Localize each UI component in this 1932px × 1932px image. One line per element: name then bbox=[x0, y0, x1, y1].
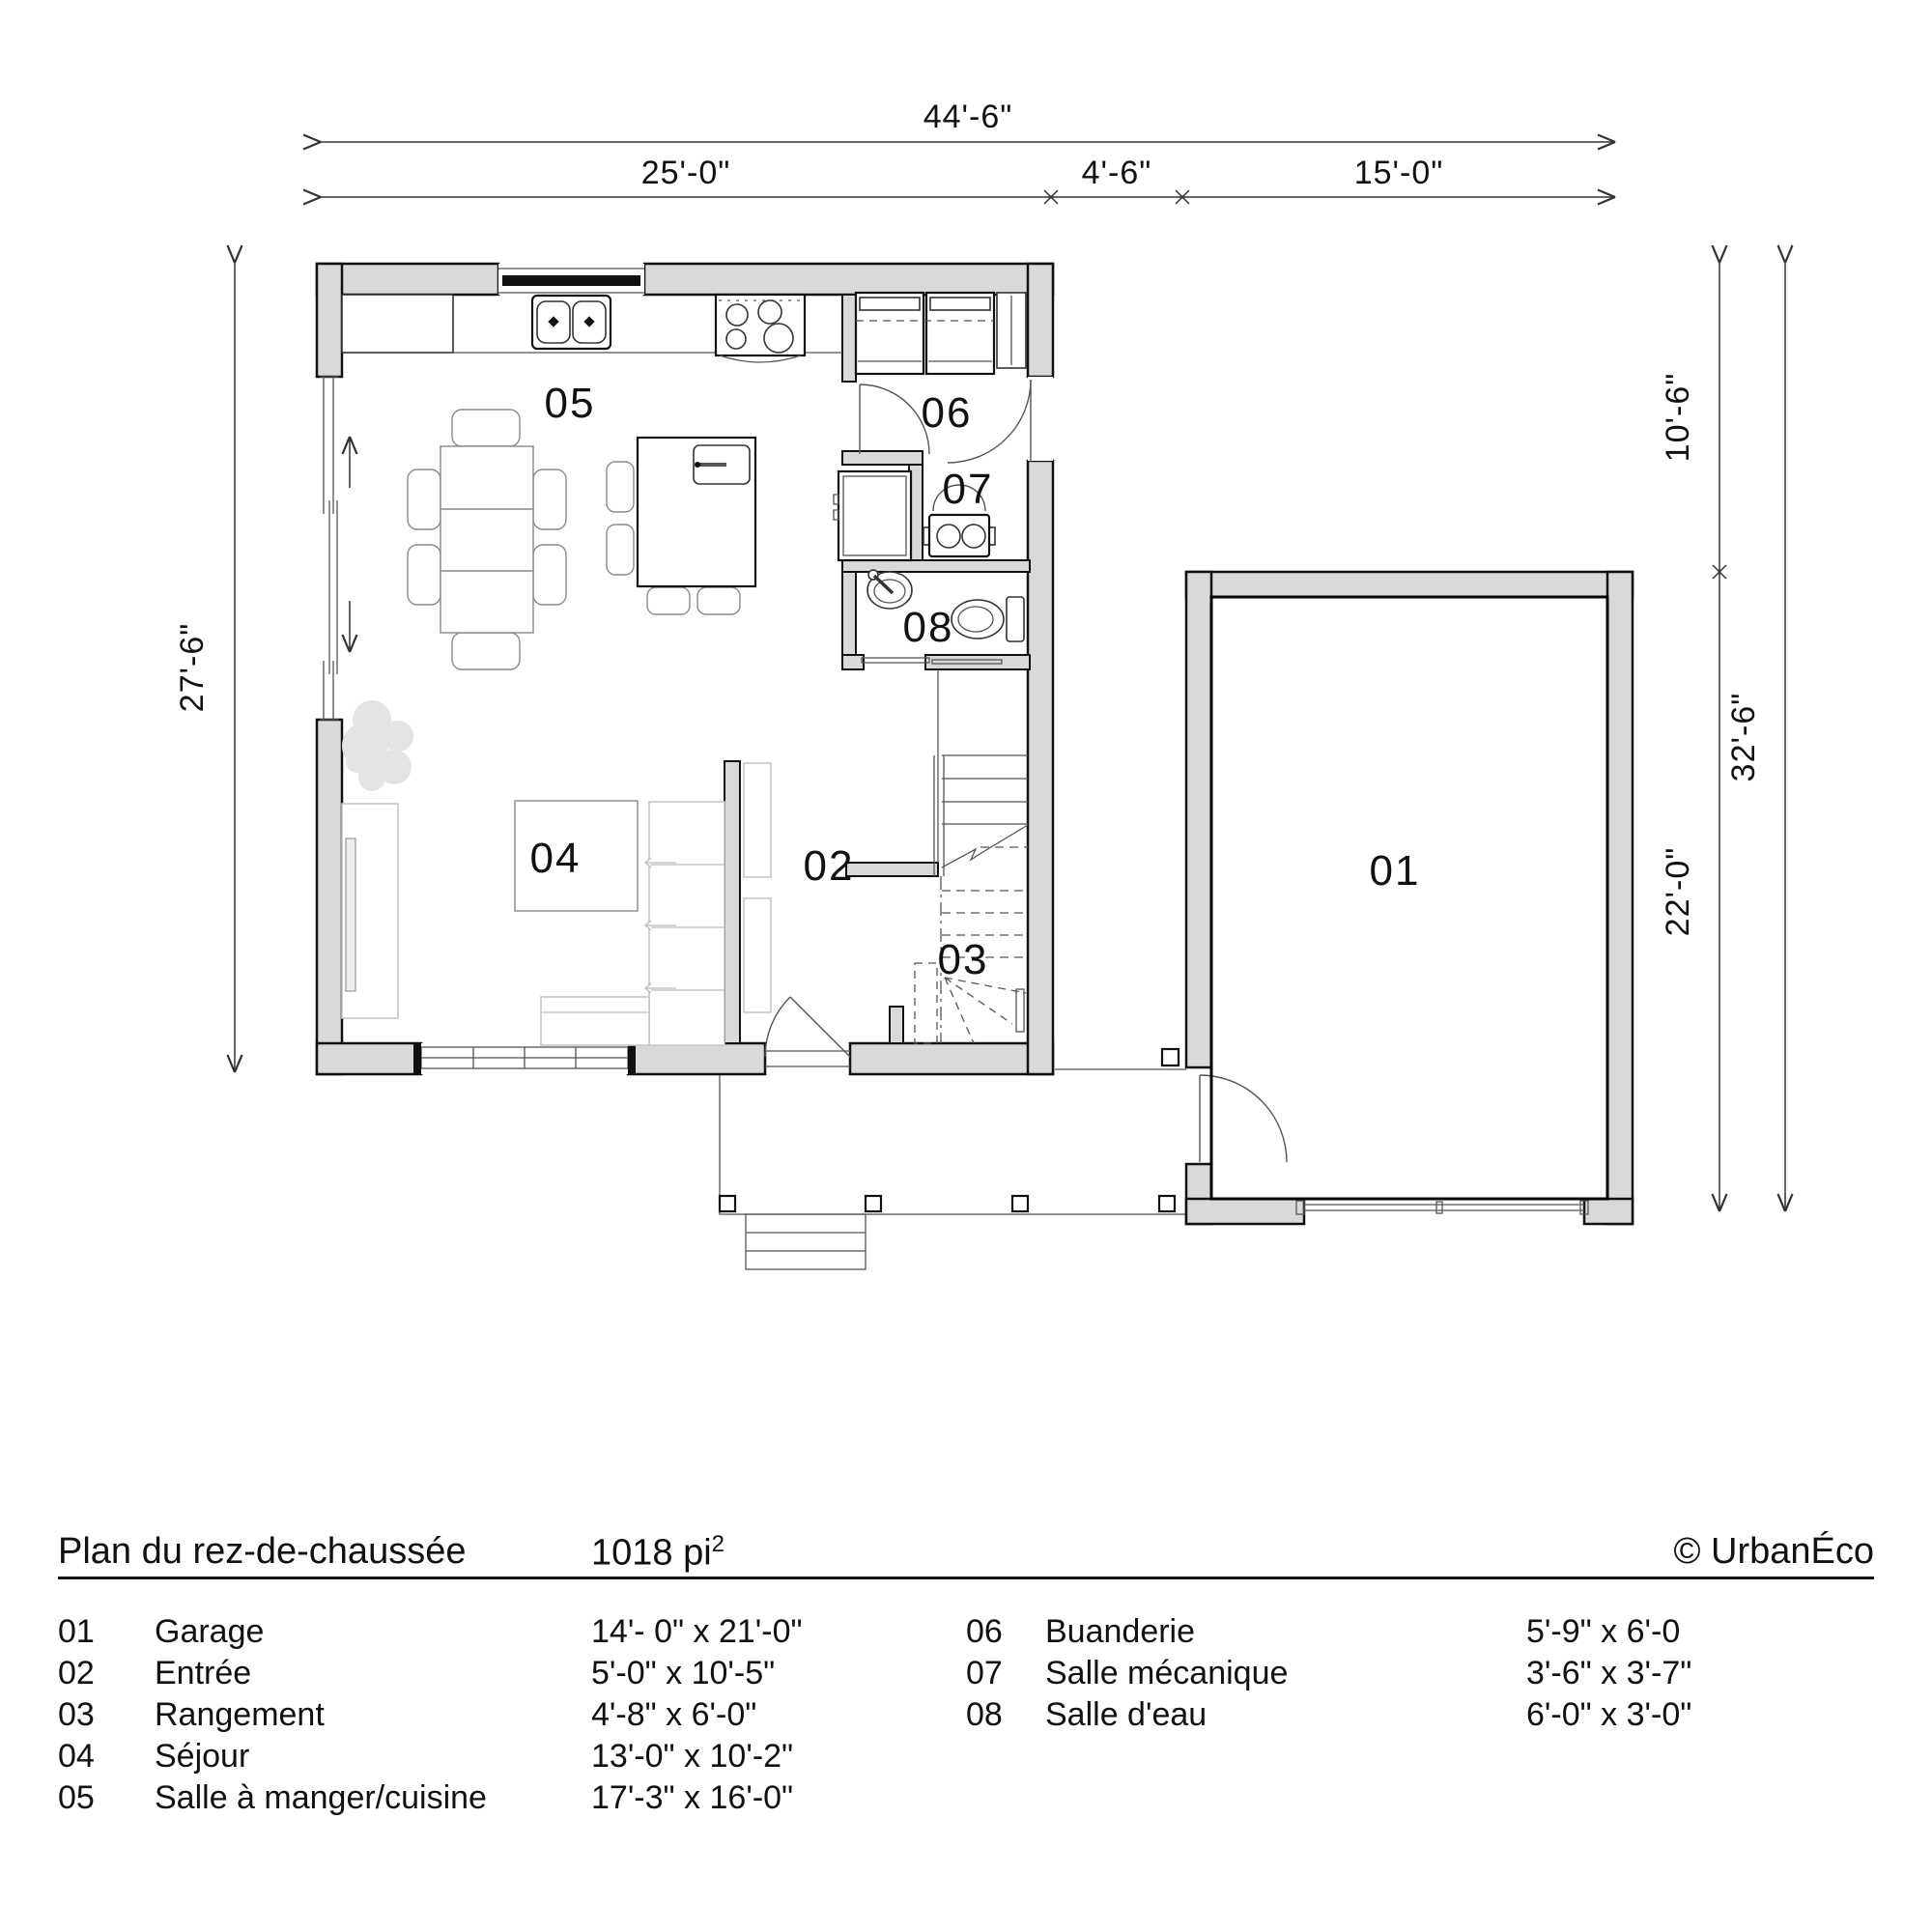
toilet bbox=[952, 597, 1024, 641]
area-exponent: 2 bbox=[712, 1531, 724, 1557]
legend-num: 08 bbox=[966, 1696, 1053, 1734]
chair bbox=[408, 469, 440, 529]
porch-post bbox=[720, 1196, 735, 1211]
entry-closet bbox=[744, 898, 771, 1012]
room-label-02: 02 bbox=[804, 842, 855, 890]
legend-name: Séjour bbox=[155, 1738, 570, 1776]
dim-right-upper: 10'-6" bbox=[1660, 373, 1696, 463]
bathroom-sink bbox=[867, 570, 912, 609]
kitchen-window bbox=[498, 264, 644, 295]
floor-plan-drawing: 44'-6" 25'-0" 4'-6" 15'-0" 27'-6" 10'-6"… bbox=[0, 0, 1932, 1507]
legend-num: 03 bbox=[58, 1696, 145, 1734]
legend-size: 6'-0" x 3'-0" bbox=[1526, 1696, 1691, 1734]
legend-size: 4'-8" x 6'-0" bbox=[591, 1696, 756, 1734]
stool bbox=[607, 462, 634, 512]
room-label-06: 06 bbox=[922, 389, 973, 437]
porch-post bbox=[1012, 1196, 1028, 1211]
kitchen-sink bbox=[532, 296, 611, 349]
garage-inner-wall-line bbox=[1211, 597, 1607, 1199]
divider-rule bbox=[58, 1577, 1874, 1579]
stair-break-line bbox=[942, 825, 1028, 867]
legend-num: 04 bbox=[58, 1738, 145, 1776]
legend-num: 07 bbox=[966, 1655, 1053, 1692]
garage bbox=[1186, 572, 1633, 1224]
plant bbox=[342, 700, 413, 791]
dim-top-seg-2: 4'-6" bbox=[1082, 155, 1152, 191]
chair bbox=[408, 545, 440, 605]
chair bbox=[452, 410, 520, 446]
floor-plan-page: { "dimensions": { "top_total": "44'-6\""… bbox=[0, 0, 1932, 1932]
legend-num: 01 bbox=[58, 1613, 145, 1651]
legend-num: 02 bbox=[58, 1655, 145, 1692]
entry-steps bbox=[746, 1214, 866, 1269]
porch-post bbox=[1159, 1196, 1175, 1211]
legend-size: 13'-0" x 10'-2" bbox=[591, 1738, 793, 1776]
stairs bbox=[915, 669, 1028, 1043]
island-appliance bbox=[694, 445, 750, 484]
front-door bbox=[765, 997, 850, 1066]
stove bbox=[716, 295, 805, 362]
area-label: 1018 pi2 bbox=[591, 1531, 724, 1575]
dining-table bbox=[440, 446, 533, 633]
area-value: 1018 pi bbox=[591, 1533, 712, 1574]
porch-post bbox=[866, 1196, 881, 1211]
page-title: Plan du rez-de-chaussée bbox=[58, 1531, 466, 1573]
legend-name: Salle d'eau bbox=[1045, 1696, 1461, 1734]
entry-closet bbox=[744, 763, 771, 877]
dim-left-total: 27'-6" bbox=[174, 623, 211, 713]
garage-door bbox=[1296, 1201, 1588, 1214]
legend-num: 06 bbox=[966, 1613, 1053, 1651]
legend-name: Salle à manger/cuisine bbox=[155, 1779, 570, 1817]
stool bbox=[607, 525, 634, 575]
legend-name: Salle mécanique bbox=[1045, 1655, 1461, 1692]
legend-size: 17'-3" x 16'-0" bbox=[591, 1779, 793, 1817]
room-label-05: 05 bbox=[545, 380, 596, 427]
dim-right-lower: 22'-0" bbox=[1660, 847, 1696, 937]
left-wall-window bbox=[320, 377, 350, 720]
stool bbox=[647, 587, 690, 614]
kitchen-island bbox=[607, 438, 755, 614]
under-stair-closet bbox=[915, 963, 937, 1043]
mechanical-fixtures bbox=[923, 515, 995, 556]
room-label-07: 07 bbox=[943, 466, 994, 513]
stool bbox=[697, 587, 740, 614]
laundry-fixtures bbox=[856, 293, 1026, 374]
dim-top-seg-3: 15'-0" bbox=[1354, 155, 1444, 191]
porch bbox=[720, 1049, 1186, 1269]
legend-num: 05 bbox=[58, 1779, 145, 1817]
legend-size: 5'-0" x 10'-5" bbox=[591, 1655, 775, 1692]
dim-top-seg-1: 25'-0" bbox=[641, 155, 731, 191]
tv bbox=[346, 838, 355, 991]
title-row: Plan du rez-de-chaussée 1018 pi2 © Urban… bbox=[0, 1531, 1932, 1579]
legend-size: 3'-6" x 3'-7" bbox=[1526, 1655, 1691, 1692]
corner-cabinet bbox=[342, 295, 453, 353]
legend-name: Garage bbox=[155, 1613, 570, 1651]
living-window bbox=[413, 1043, 636, 1074]
chair bbox=[533, 545, 566, 605]
porch-post bbox=[1162, 1049, 1179, 1065]
laundry-door-kitchen bbox=[860, 384, 929, 454]
legend-name: Rangement bbox=[155, 1696, 570, 1734]
room-label-08: 08 bbox=[903, 604, 954, 651]
room-label-03: 03 bbox=[938, 936, 989, 983]
dim-top-total: 44'-6" bbox=[923, 99, 1013, 135]
chair bbox=[533, 469, 566, 529]
dim-right-total: 32'-6" bbox=[1725, 693, 1762, 782]
room-label-01: 01 bbox=[1370, 847, 1421, 895]
legend-name: Buanderie bbox=[1045, 1613, 1461, 1651]
room-label-04: 04 bbox=[530, 835, 582, 882]
legend-size: 14'- 0" x 21'-0" bbox=[591, 1613, 803, 1651]
dining-set bbox=[408, 410, 566, 669]
refrigerator bbox=[834, 471, 911, 560]
legend-size: 5'-9" x 6'-0 bbox=[1526, 1613, 1680, 1651]
chair bbox=[452, 633, 520, 669]
copyright: © UrbanÉco bbox=[1673, 1531, 1874, 1573]
legend-name: Entrée bbox=[155, 1655, 570, 1692]
